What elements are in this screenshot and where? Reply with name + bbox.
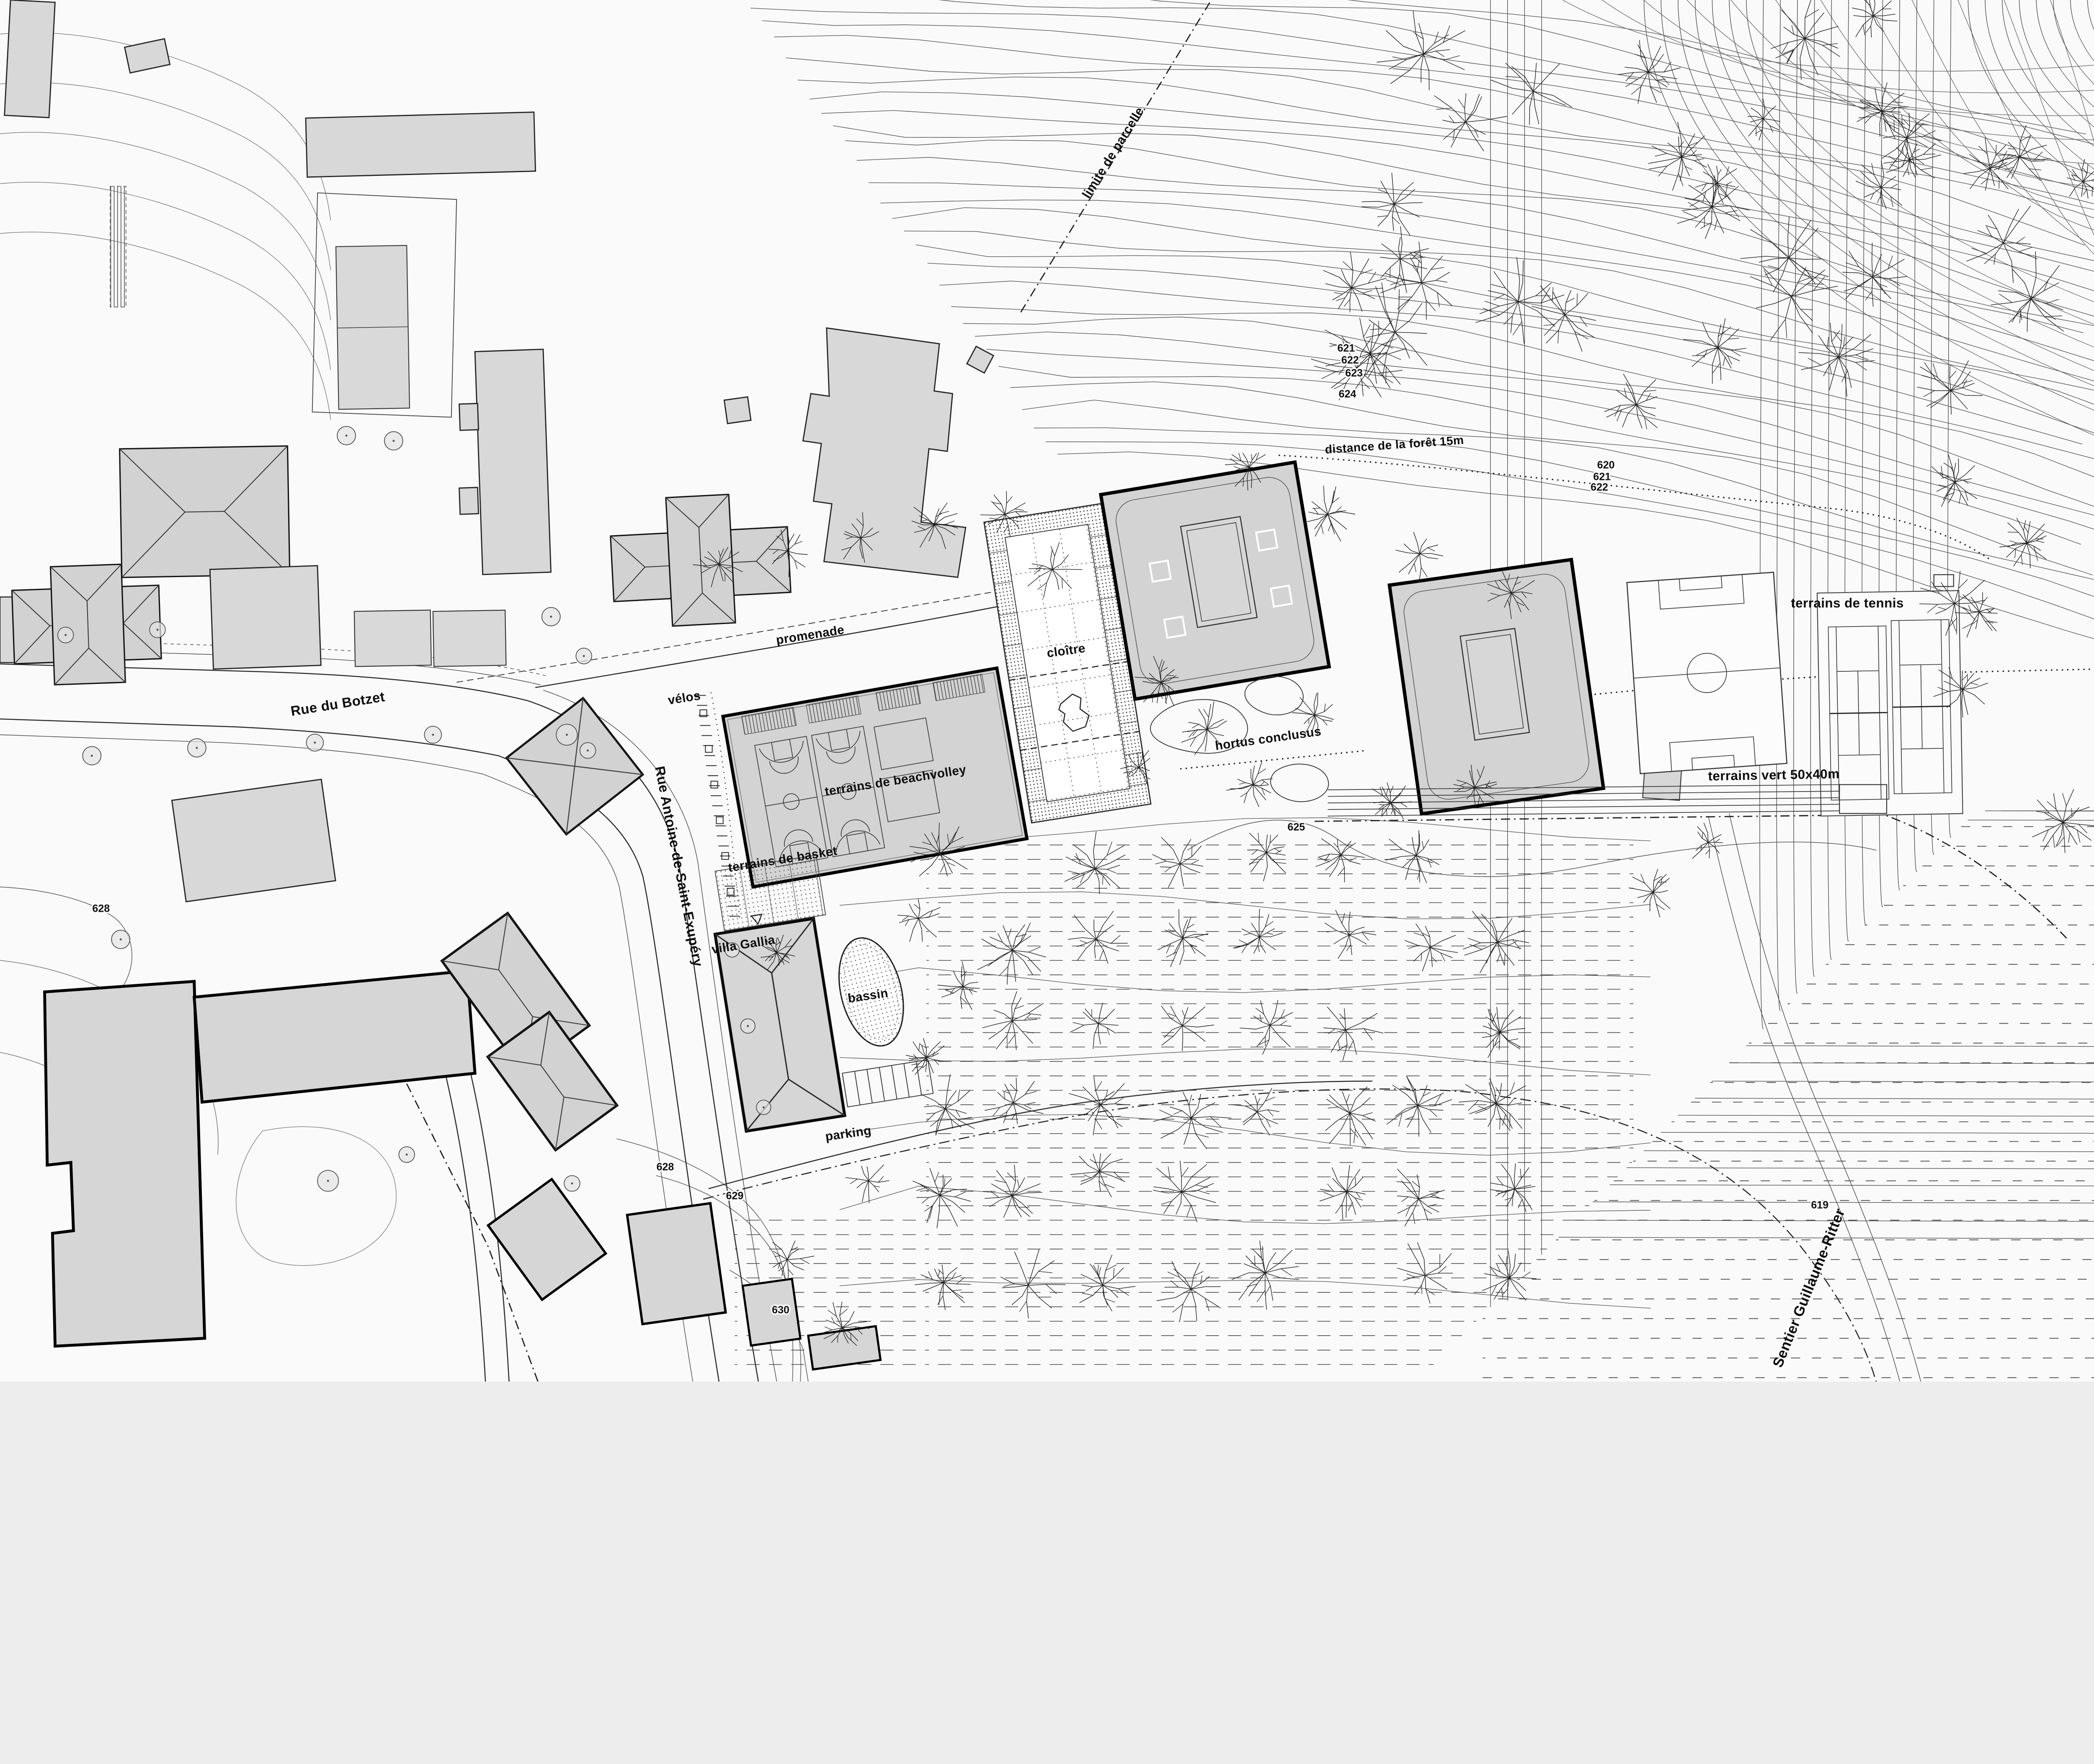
building [459,487,478,514]
deciduous-tree-icon [1157,1261,1221,1322]
label-rue-du-botzet: Rue du Botzet [289,689,386,719]
deciduous-tree-icon [1677,175,1749,239]
court-b [433,610,506,667]
building-villa-mid [506,698,642,834]
label-623: 623 [1345,367,1363,379]
building-nw-a [5,0,55,118]
deciduous-tree-icon [1068,911,1128,964]
label-terrains-vert: terrains vert 50x40m [1708,766,1840,783]
round-tree-icon [424,726,441,743]
building-villa-s2 [627,1203,725,1324]
round-tree-icon [188,739,206,757]
deciduous-tree-icon [1226,761,1273,807]
deciduous-tree-icon [1362,282,1427,376]
deciduous-tree-icon [1693,164,1737,209]
building [459,403,478,430]
tennis-hut [1934,575,1954,586]
deciduous-tree-icon [1385,830,1439,883]
deciduous-tree-icon [1070,1003,1119,1049]
deciduous-tree-icon [2032,789,2094,853]
deciduous-tree-icon [1932,454,1977,507]
label-621: 621 [1593,471,1611,483]
label-620: 620 [1597,459,1615,471]
deciduous-tree-icon [1323,1007,1383,1060]
deciduous-tree-icon [1397,1242,1453,1303]
round-tree-icon [83,747,101,765]
round-tree-icon [111,930,130,949]
label-sentier-guillaume-ritter: Sentier Guillaume-Ritter [1770,1206,1848,1369]
deciduous-tree-icon [1323,252,1386,312]
label-limite-de-parcelle: limite de parcelle [1080,105,1147,201]
label-628: 628 [656,1161,674,1173]
label-hortus-conclusus: hortus conclusus [1214,725,1322,753]
building-hip-north [120,446,290,578]
round-tree-icon [580,743,596,758]
building-villa-s4 [808,1326,881,1369]
shed-a [724,397,751,424]
round-tree-icon [58,627,74,643]
label-624: 624 [1339,388,1356,400]
deciduous-tree-icon [1852,0,1897,38]
deciduous-tree-icon [1240,1000,1293,1055]
round-tree-icon [307,734,324,751]
building-house-3 [210,566,321,669]
deciduous-tree-icon [1491,63,1572,125]
deciduous-tree-icon [1070,1153,1130,1197]
round-tree-icon [564,1176,580,1191]
building-tall-block [475,349,551,575]
building-villa-s1 [488,1179,606,1300]
label-promenade: promenade [775,623,846,647]
tennis-courts [1817,591,1963,816]
deciduous-tree-icon [773,1240,815,1280]
deciduous-tree-icon [1692,823,1723,859]
sports-court-existing [336,245,410,409]
label-622: 622 [1591,482,1608,493]
deciduous-tree-icon [845,1165,889,1203]
deciduous-tree-icon [1158,909,1208,967]
label-terrains-de-tennis: terrains de tennis [1791,596,1903,610]
court-a [354,610,431,667]
deciduous-tree-icon [1395,532,1443,583]
label-629: 629 [726,1190,743,1202]
deciduous-tree-icon [1491,1163,1535,1212]
deciduous-tree-icon [1320,1165,1366,1220]
deciduous-tree-icon [1999,518,2046,568]
deciduous-tree-icon [1463,911,1529,973]
round-tree-icon [740,1019,755,1033]
deciduous-tree-icon [1161,1006,1214,1051]
label-rue-antoine-de-saint-exupery: Rue Antoine-de-Saint-Exupéry [652,765,706,968]
round-tree-icon [756,1100,771,1114]
building-school-lower [172,779,335,902]
building-sw-complex-wing [194,971,475,1102]
round-tree-icon [317,1170,338,1191]
deciduous-tree-icon [1396,1169,1445,1226]
building-a [1101,462,1329,699]
deciduous-tree-icon [1307,486,1356,542]
deciduous-tree-icon [1387,1076,1452,1137]
deciduous-tree-icon [915,1265,971,1310]
shed-b [967,346,994,373]
deciduous-tree-icon [1001,1249,1065,1318]
deciduous-tree-icon [1532,286,1596,351]
label-628: 628 [92,903,110,914]
round-tree-icon [150,622,165,638]
deciduous-tree-icon [1069,1075,1131,1135]
deciduous-tree-icon [1405,924,1458,972]
building-sw-complex-main [45,981,205,1346]
deciduous-tree-icon [983,991,1044,1050]
deciduous-tree-icon [977,923,1046,985]
deciduous-tree-icon [1629,869,1670,918]
label-parking: parking [824,1124,872,1144]
deciduous-tree-icon [937,961,980,1010]
label-621: 621 [1337,343,1355,354]
deciduous-tree-icon [985,1078,1044,1124]
building-nw-b [125,39,170,73]
round-tree-icon [337,426,356,445]
deciduous-tree-icon [2067,159,2094,199]
building-stepped-block [803,328,965,577]
hedge-blob [1245,676,1303,715]
label-630: 630 [772,1304,789,1316]
deciduous-tree-icon [906,1038,944,1074]
deciduous-tree-icon [1604,374,1658,429]
deciduous-tree-icon [1065,831,1125,894]
deciduous-tree-icon [1362,173,1423,235]
deciduous-tree-icon [897,899,940,941]
label-velos: vélos [667,689,702,707]
site-plan: Rue du BotzetRue Antoine-de-Saint-Exupér… [0,0,2094,1382]
deciduous-tree-icon [1232,1240,1299,1310]
building-b [1390,560,1604,814]
round-tree-icon [384,432,403,450]
deciduous-tree-icon [1326,1087,1376,1145]
round-tree-icon [576,648,592,664]
meadow-texture-layer [735,845,1633,1365]
label-619: 619 [1811,1199,1828,1211]
round-tree-icon [542,607,560,626]
hedge-blob [1271,764,1328,802]
deciduous-tree-icon [1377,11,1465,90]
round-tree-icon [399,1147,415,1163]
deciduous-tree-icon [1459,1078,1526,1131]
label-622: 622 [1341,354,1359,366]
building-church-transept [666,494,735,626]
deciduous-tree-icon [1475,257,1564,344]
building-cross-b [50,564,125,685]
deciduous-tree-icon [1325,318,1406,395]
round-tree-icon [556,724,577,745]
label-625: 625 [1287,821,1305,833]
football-pitch [1627,572,1787,774]
building-long-block [306,112,536,177]
deciduous-tree-icon [1372,782,1411,819]
